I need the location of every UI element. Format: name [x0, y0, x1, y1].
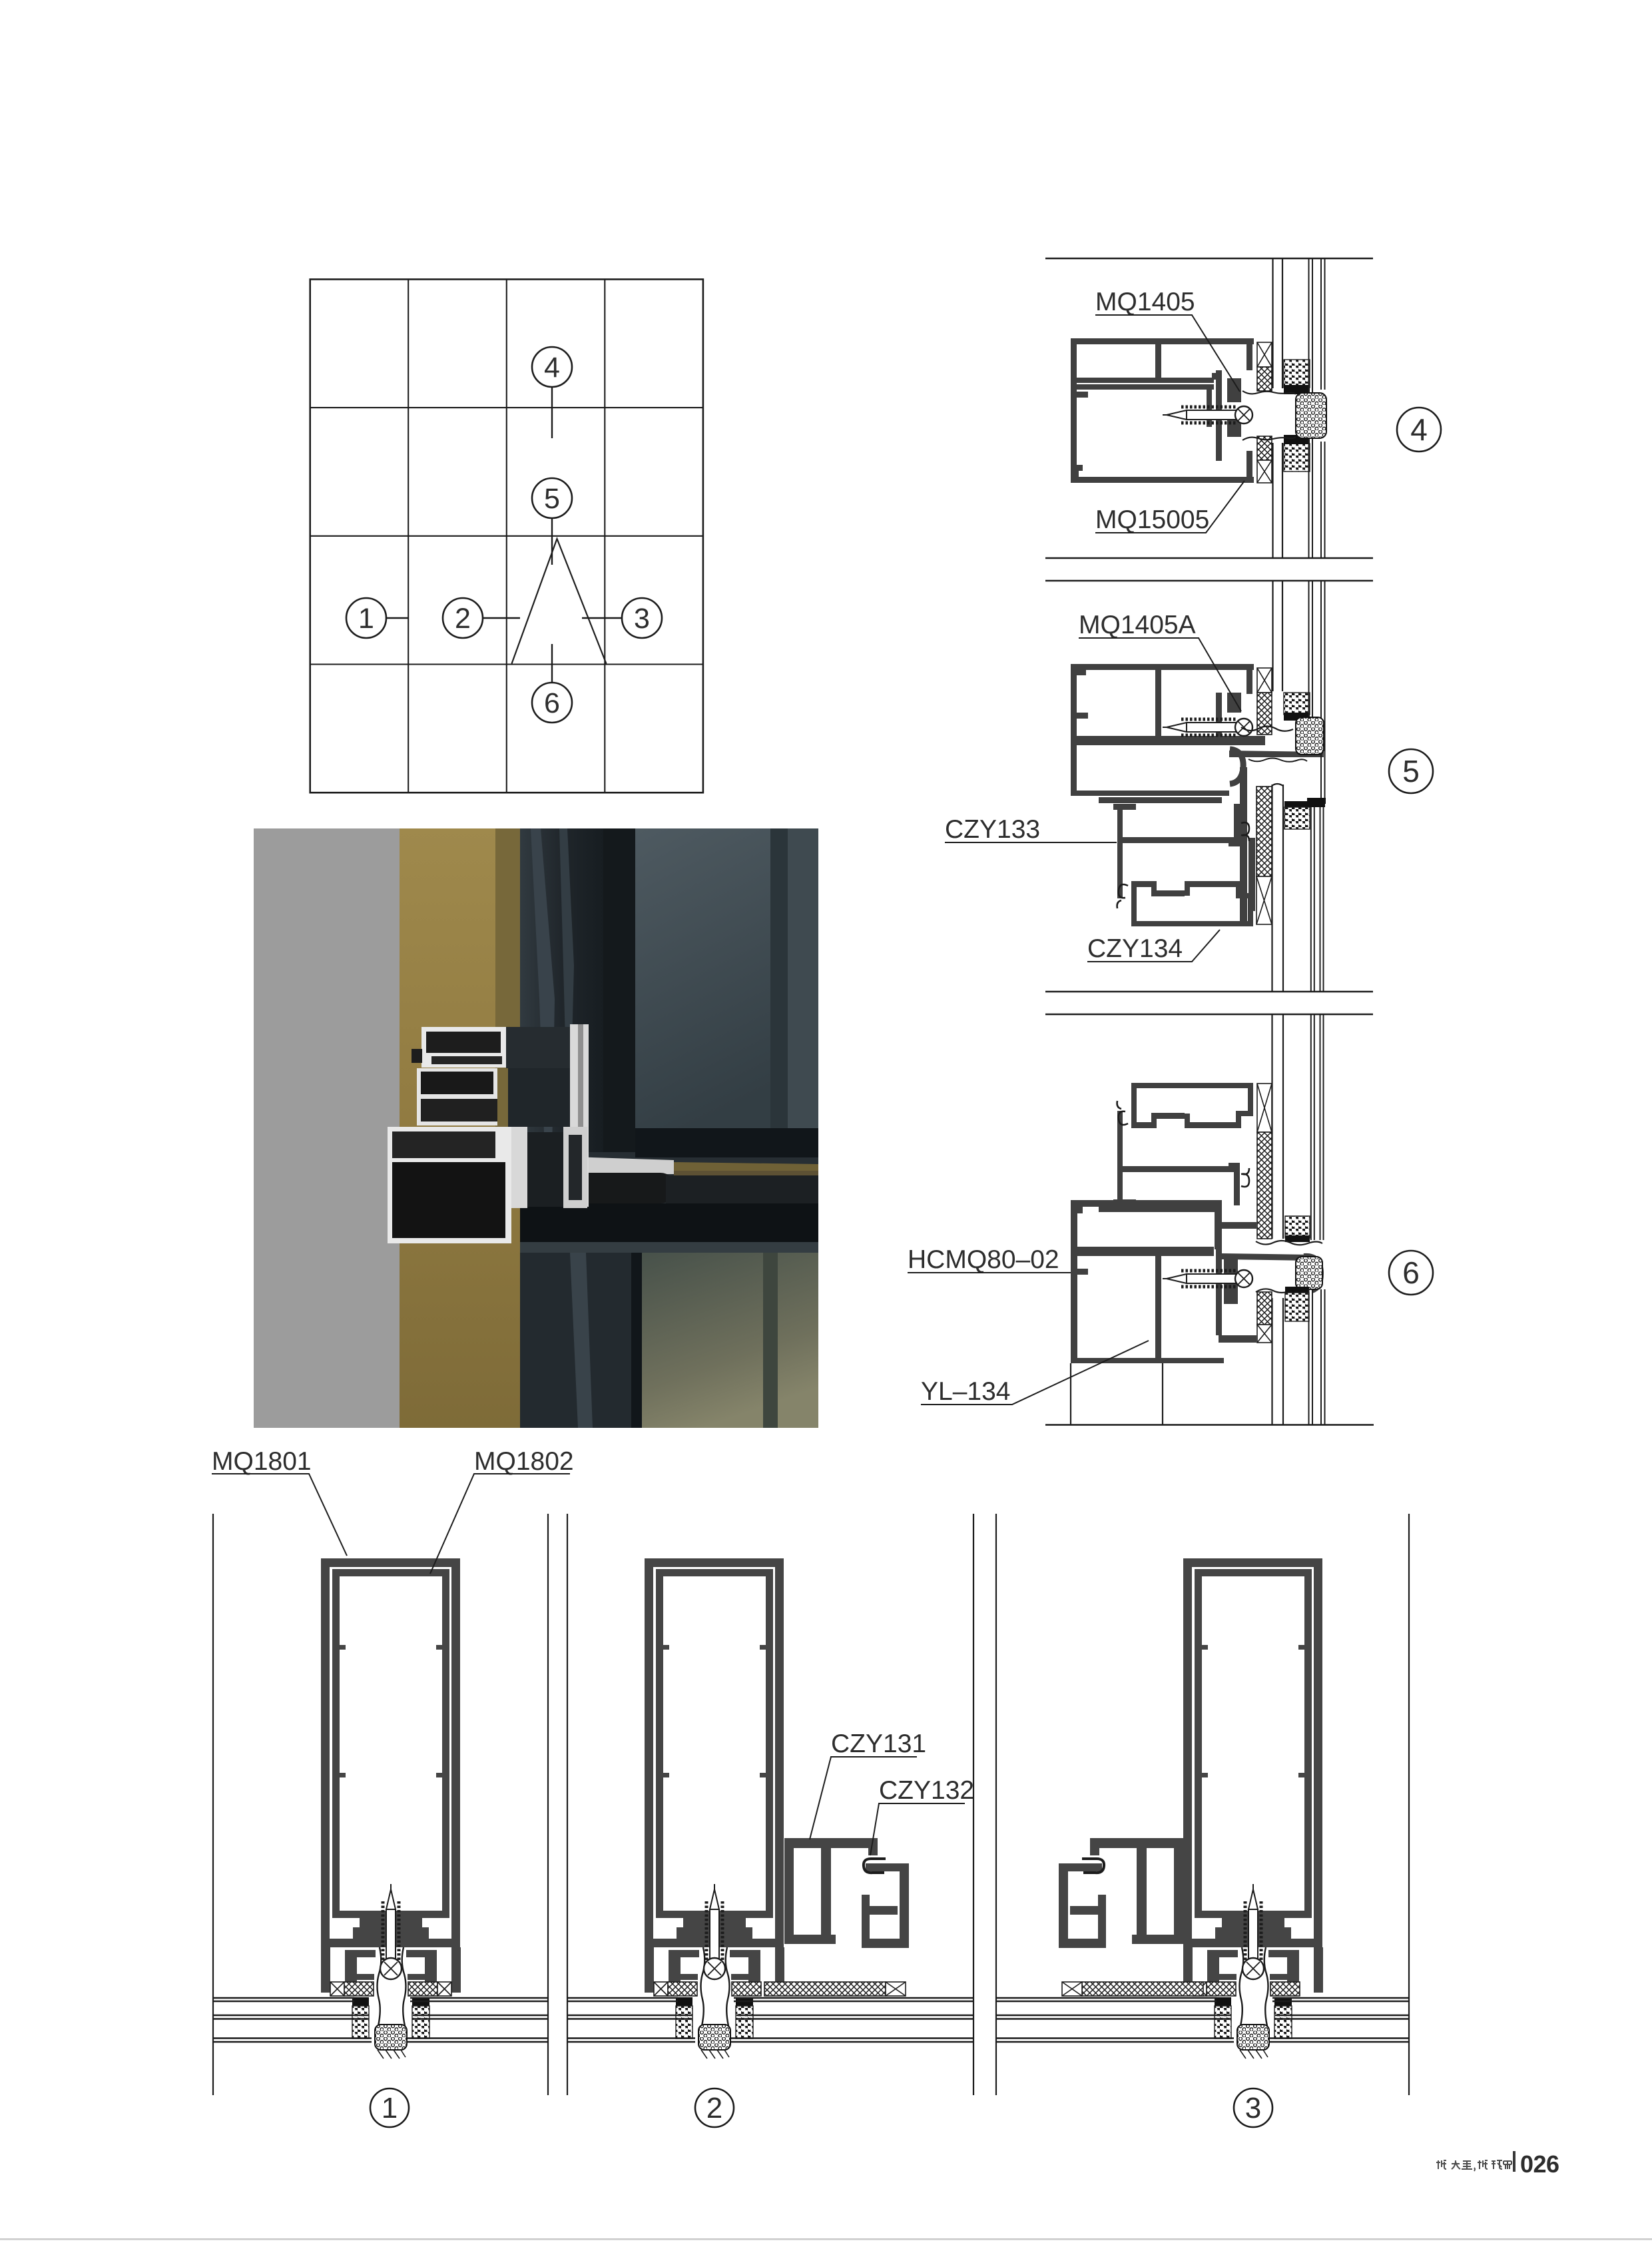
svg-text:6: 6	[544, 687, 560, 719]
svg-text:MQ1801: MQ1801	[212, 1447, 312, 1476]
svg-text:HCMQ80–02: HCMQ80–02	[908, 1245, 1059, 1274]
svg-text:CZY132: CZY132	[879, 1776, 974, 1805]
svg-text:MQ1405: MQ1405	[1095, 288, 1195, 316]
svg-text:YL–134: YL–134	[921, 1377, 1010, 1406]
svg-text:3: 3	[1245, 2092, 1261, 2124]
svg-text:2: 2	[455, 603, 471, 635]
svg-text:026: 026	[1520, 2150, 1559, 2178]
svg-text:1: 1	[358, 603, 374, 635]
svg-text:MQ1405A: MQ1405A	[1079, 611, 1196, 639]
svg-text:3: 3	[634, 603, 650, 635]
svg-text:2: 2	[706, 2092, 722, 2124]
svg-text:MQ1802: MQ1802	[474, 1447, 574, 1476]
svg-text:6: 6	[1402, 1255, 1420, 1290]
svg-text:4: 4	[1410, 412, 1428, 447]
svg-text:MQ15005: MQ15005	[1095, 505, 1209, 534]
svg-text:CZY133: CZY133	[945, 815, 1040, 844]
svg-text:CZY134: CZY134	[1087, 934, 1183, 963]
svg-text:1: 1	[382, 2092, 398, 2124]
svg-text:5: 5	[1402, 754, 1420, 789]
svg-text:4: 4	[544, 352, 560, 384]
svg-text:CZY131: CZY131	[831, 1730, 926, 1758]
svg-text:5: 5	[544, 483, 560, 515]
